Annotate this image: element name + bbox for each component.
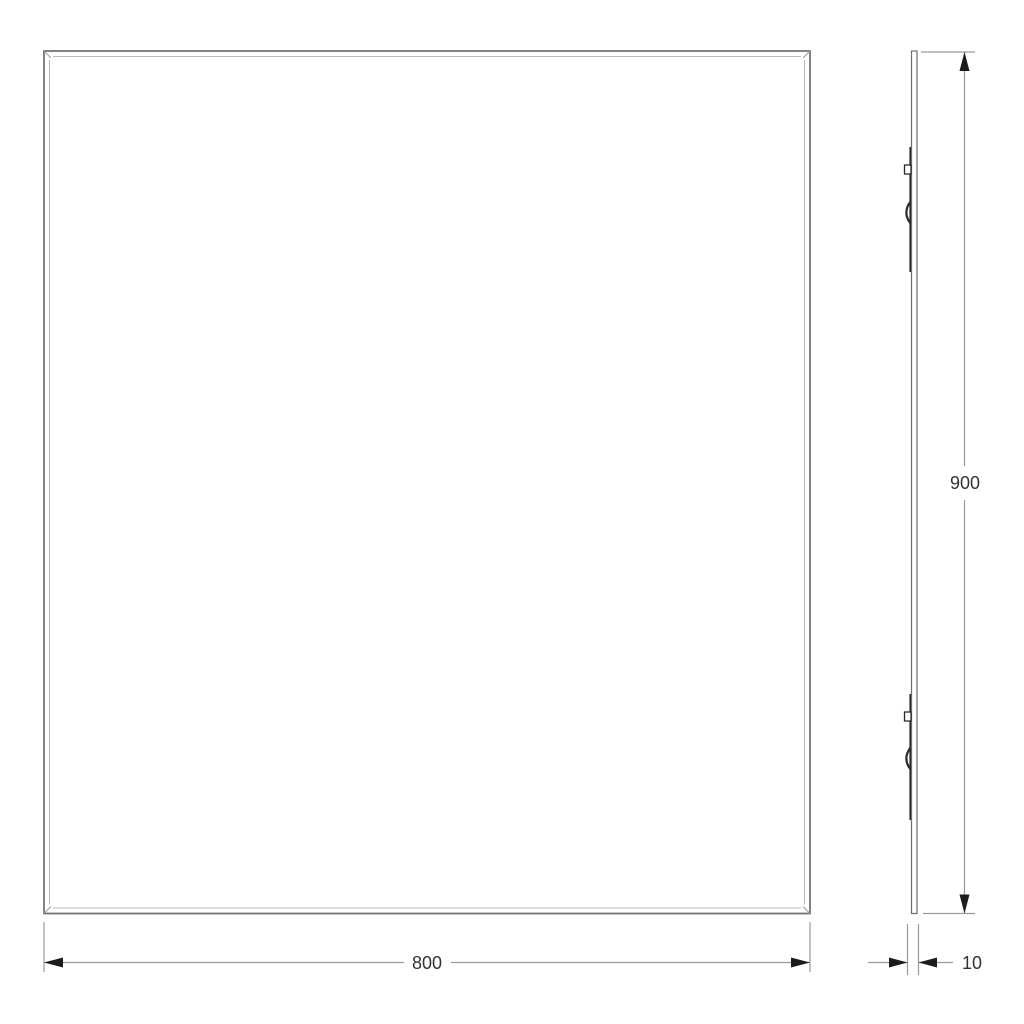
mirror-outline [44, 51, 810, 914]
height-arrow-up-icon [960, 52, 970, 71]
mirror-corner-chamfer-top-left [44, 51, 51, 58]
depth-dimension-label: 10 [962, 953, 982, 973]
width-arrow-left-icon [44, 958, 63, 968]
width-dimension-label: 800 [412, 953, 442, 973]
depth-dimension: 10 [868, 924, 982, 975]
mirror-dimension-drawing: 800 900 [0, 0, 1024, 1024]
mirror-corner-chamfer-top-right [803, 51, 810, 58]
mirror-corner-chamfer-bottom-right [803, 907, 810, 914]
bracket-hook-tab [905, 712, 912, 721]
depth-arrow-left-icon [889, 958, 908, 968]
bracket-hook-tab [905, 165, 912, 174]
mirror-profile [912, 51, 918, 914]
height-dimension: 900 [921, 52, 980, 914]
mounting-bracket-upper [905, 147, 912, 272]
width-arrow-right-icon [791, 958, 810, 968]
front-view [44, 51, 810, 914]
side-view [905, 51, 918, 914]
technical-drawing-canvas: 800 900 [0, 0, 1024, 1024]
depth-arrow-right-icon [919, 958, 938, 968]
mirror-corner-chamfer-bottom-left [44, 907, 51, 914]
mounting-bracket-lower [905, 694, 912, 820]
height-dimension-label: 900 [950, 473, 980, 493]
width-dimension: 800 [44, 922, 810, 973]
height-arrow-down-icon [960, 895, 970, 914]
